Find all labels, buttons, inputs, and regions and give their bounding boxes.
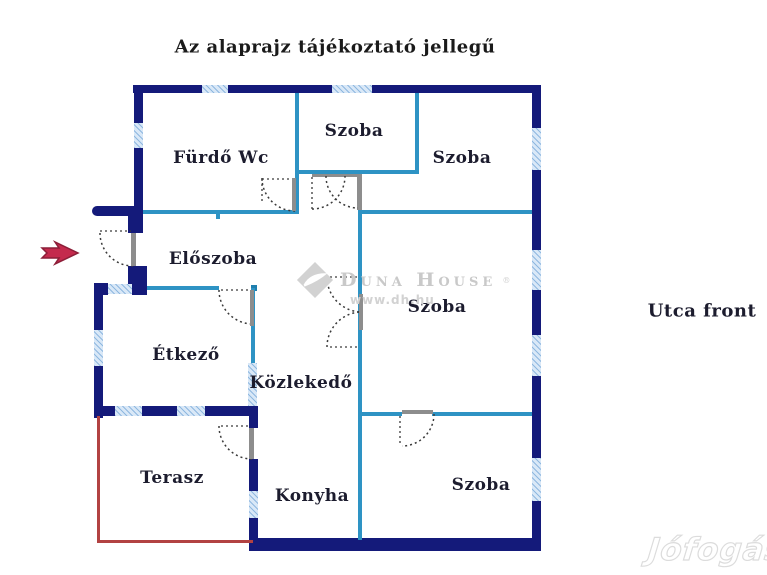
- partition-etkezo-top: [147, 286, 219, 290]
- furdo-door-arc: [262, 178, 295, 211]
- wall-konyha-left-1: [249, 416, 258, 428]
- room-label-szoba-top-right: Szoba: [433, 148, 492, 168]
- street-front-label: Utca front: [648, 301, 757, 322]
- duna-house-logo-icon: [296, 261, 334, 299]
- room-label-eloszoba: Előszoba: [169, 249, 257, 269]
- window-etkezo-left: [94, 330, 103, 366]
- szoba-bottom-door-leaf: [402, 410, 433, 414]
- room-label-szoba-top-mid: Szoba: [325, 121, 384, 141]
- vestibule-door-frame-right: [357, 174, 362, 210]
- terasz-door-leaf: [249, 428, 254, 459]
- partition-szoba-midright-left: [358, 210, 362, 416]
- window-terasz-right: [249, 491, 258, 518]
- brand-url-watermark: www.dh.hu: [350, 293, 435, 307]
- partition-konyha-right: [358, 416, 362, 540]
- room-label-furdo: Fürdő Wc: [173, 148, 269, 168]
- szoba-bottom-door-arc: [402, 414, 434, 446]
- entrance-door-arc: [100, 233, 133, 266]
- room-label-szoba-bottom-right: Szoba: [452, 475, 511, 495]
- window-right-3: [532, 335, 541, 376]
- brand-watermark-text: Duna House: [340, 269, 496, 291]
- wall-eloszoba-left-upper: [128, 215, 143, 233]
- window-top-2: [332, 85, 372, 93]
- entrance-arrow-icon: [42, 242, 78, 264]
- partition-szoba-divider: [415, 93, 419, 174]
- window-right-1: [532, 128, 541, 170]
- partition-furdo-bottom: [143, 210, 299, 214]
- partition-szoba-topmid-bottom: [295, 170, 419, 174]
- wall-etkezo-top-right: [132, 283, 147, 295]
- szoba-mid-door-arc-bottom: [327, 312, 362, 347]
- wall-bottom: [249, 538, 541, 551]
- vestibule-door-frame-top: [312, 174, 362, 177]
- terrace-line-left: [97, 416, 100, 543]
- window-terasz-top-2: [177, 406, 205, 416]
- room-label-konyha: Konyha: [275, 486, 349, 506]
- brand-registered-mark: ®: [502, 276, 510, 285]
- partition-szoba-bottom-top-1: [358, 412, 402, 416]
- partition-furdo-tick: [216, 214, 220, 219]
- terrace-line-bottom: [97, 540, 253, 543]
- partition-szoba-topright-bottom: [358, 210, 532, 214]
- partition-furdo-right: [295, 93, 299, 214]
- window-top-1: [202, 85, 228, 93]
- entrance-door-leaf: [131, 233, 136, 266]
- room-label-kozlekedo: Közlekedő: [250, 373, 353, 393]
- page-title: Az alaprajz tájékoztató jellegű: [175, 37, 496, 58]
- portal-watermark: Jófogás: [646, 532, 767, 568]
- room-label-terasz: Terasz: [140, 468, 204, 488]
- window-terasz-top-1: [115, 406, 142, 416]
- partition-etkezo-right: [251, 288, 255, 363]
- floor-plan: Az alaprajz tájékoztató jellegű: [0, 0, 767, 575]
- window-etkezo-top: [108, 284, 132, 294]
- vestibule-door-arc-left: [312, 176, 345, 209]
- wall-konyha-left-2: [249, 459, 258, 491]
- window-left-upper: [134, 123, 143, 148]
- partition-szoba-bottom-top-2: [432, 412, 532, 416]
- vestibule-door-arc-right: [326, 176, 358, 208]
- wall-left-upper: [134, 85, 143, 213]
- window-right-4: [532, 458, 541, 501]
- terasz-door-arc: [219, 426, 252, 459]
- room-label-etkezo: Étkező: [152, 345, 219, 365]
- window-right-2: [532, 250, 541, 290]
- etkezo-door-arc: [219, 290, 253, 324]
